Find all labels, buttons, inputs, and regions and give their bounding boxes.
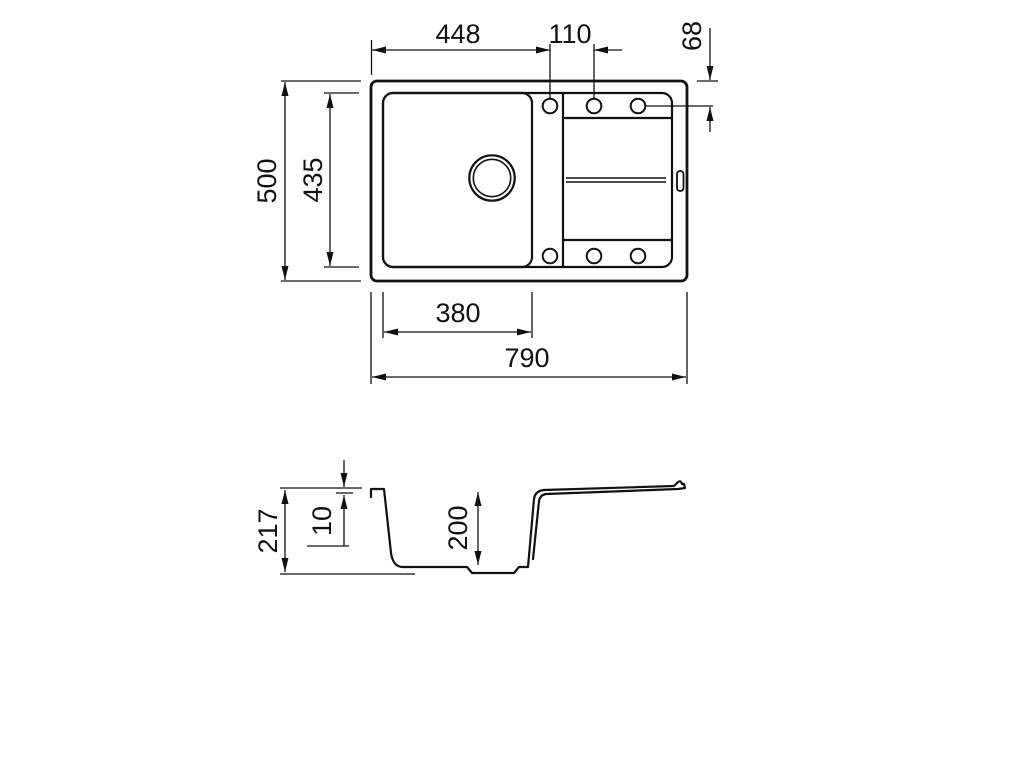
- plan-view: [371, 81, 687, 281]
- sink-outer-edge: [371, 81, 687, 281]
- dim-label: 500: [252, 158, 282, 203]
- drain-outer-ring: [469, 155, 514, 200]
- dim-435: 435: [298, 93, 359, 267]
- dim-10: 10: [307, 460, 353, 546]
- tap-hole: [631, 99, 646, 114]
- dim-label: 10: [307, 506, 337, 536]
- dim-label: 110: [548, 19, 591, 49]
- sink-section-profile: [371, 481, 685, 573]
- bowl-outline: [383, 93, 532, 267]
- dim-label: 790: [504, 343, 549, 373]
- dim-label: 435: [298, 157, 328, 202]
- tap-hole: [543, 249, 558, 264]
- tap-hole: [587, 99, 602, 114]
- technical-drawing-page: 448 110 68 500 435 380 790: [0, 0, 1024, 768]
- overflow-slot: [677, 171, 684, 191]
- dim-110: 110: [548, 19, 622, 98]
- dim-448: 448: [372, 19, 551, 98]
- drain-inner-ring: [473, 159, 510, 196]
- dim-label: 380: [435, 298, 480, 328]
- tap-hole: [543, 99, 558, 114]
- dim-label: 200: [443, 505, 473, 550]
- dim-380: 380: [383, 292, 532, 338]
- dim-label: 217: [253, 508, 283, 553]
- dim-label: 68: [677, 21, 707, 51]
- dim-label: 448: [435, 19, 480, 49]
- dim-790: 790: [371, 292, 687, 384]
- dim-200: 200: [443, 492, 478, 565]
- dim-68: 68: [646, 21, 718, 132]
- tap-hole: [631, 249, 646, 264]
- sink-dimension-drawing: 448 110 68 500 435 380 790: [0, 0, 1024, 768]
- tap-hole: [587, 249, 602, 264]
- section-view: [371, 481, 685, 573]
